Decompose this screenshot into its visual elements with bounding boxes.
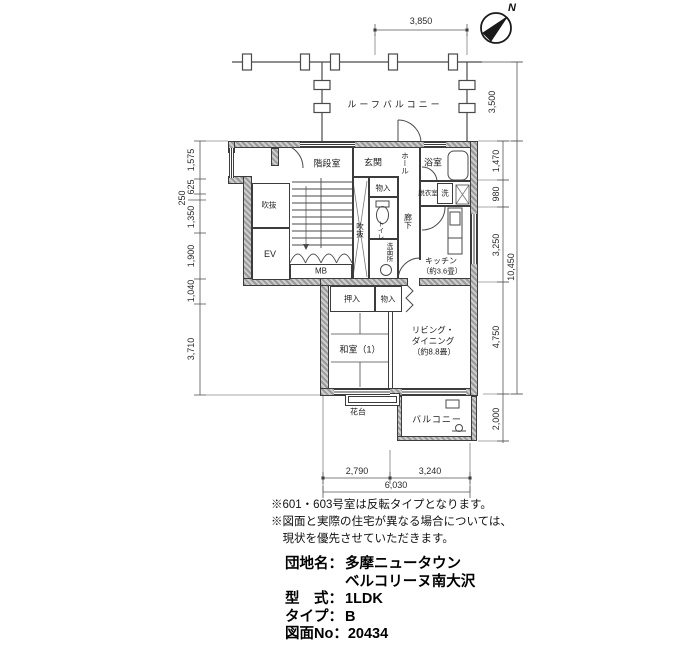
dim-bottom-2790: 2,790 bbox=[346, 466, 369, 476]
partition bbox=[352, 148, 354, 278]
partition bbox=[352, 176, 399, 178]
dim-left-250: 250 bbox=[177, 190, 187, 205]
room-label-ev: EV bbox=[264, 249, 276, 259]
room-label-mb: MB bbox=[315, 267, 327, 276]
wall bbox=[470, 141, 478, 396]
room-label-stairwell: 階段室 bbox=[313, 157, 340, 170]
info-row-danchi: 団地名：多摩ニュータウン bbox=[285, 556, 475, 574]
room-label-washroom: 洗面所 bbox=[383, 242, 393, 262]
balcony-door bbox=[402, 389, 466, 395]
dim-right-4750: 4,750 bbox=[491, 326, 501, 349]
window bbox=[229, 148, 234, 178]
bathtub-icon bbox=[448, 151, 468, 180]
floor-plan-page: ルーフバルコニー 階段室 玄関 ホール 浴室 物入 脱衣室 洗 吹抜 EV MB… bbox=[0, 0, 700, 650]
fusuma-partition bbox=[392, 312, 393, 388]
dim-left-625: 625 bbox=[186, 179, 196, 194]
dim-right-1470: 1,470 bbox=[491, 150, 501, 173]
compass-icon bbox=[481, 13, 511, 43]
note-line: ※図面と実際の住宅が異なる場合については、 bbox=[271, 514, 512, 531]
dim-right-980: 980 bbox=[491, 186, 501, 201]
folding-door bbox=[406, 284, 413, 312]
info-value: ベルコリーヌ南大沢 bbox=[345, 574, 475, 590]
room-label-washitsu: 和室（1） bbox=[339, 343, 380, 356]
partition bbox=[421, 180, 470, 182]
room-label-oshiire: 押入 bbox=[344, 294, 360, 305]
window bbox=[424, 142, 446, 147]
info-row-plan-type: タイプ：B bbox=[285, 609, 475, 627]
room-label-living-size: （約8.8畳） bbox=[412, 347, 455, 358]
balcony-drain-icon bbox=[456, 425, 463, 432]
washbasin-icon bbox=[381, 265, 392, 276]
mb-door-arcs bbox=[290, 254, 352, 263]
partition bbox=[368, 176, 370, 278]
dim-right-3250: 3,250 bbox=[491, 234, 501, 257]
stairs bbox=[292, 178, 352, 250]
info-row-danchi2: ベルコリーヌ南大沢 bbox=[285, 574, 475, 592]
fusuma-partition bbox=[388, 312, 389, 388]
note-line: 現状を優先させていただきます。 bbox=[271, 531, 512, 548]
info-label: 型 式： bbox=[285, 591, 345, 609]
dim-left-1350: 1,350 bbox=[186, 206, 196, 229]
info-label: 図面No： bbox=[285, 626, 348, 644]
kitchen-counter-icon bbox=[448, 208, 462, 238]
room-label-corridor: 廊下 bbox=[403, 213, 414, 229]
dim-left-1575: 1,575 bbox=[186, 149, 196, 172]
info-row-drawing-no: 図面No：20434 bbox=[285, 626, 475, 644]
window bbox=[471, 214, 477, 264]
info-value: 多摩ニュータウン bbox=[345, 556, 461, 572]
balcony-wall bbox=[397, 436, 477, 441]
room-label-roof-balcony: ルーフバルコニー bbox=[347, 98, 442, 111]
dim-top-3850: 3,850 bbox=[410, 16, 433, 26]
room-label-living-2: ダイニング bbox=[412, 335, 455, 347]
room-label-storage-upper: 物入 bbox=[376, 183, 391, 194]
dim-right-10450: 10,450 bbox=[506, 253, 516, 281]
window bbox=[300, 142, 355, 147]
info-value: B bbox=[345, 609, 355, 625]
wall bbox=[320, 278, 408, 286]
room-label-entrance: 玄関 bbox=[364, 156, 382, 169]
room-label-kitchen-size: （約3.6畳） bbox=[422, 266, 462, 277]
dim-bottom-3240: 3,240 bbox=[419, 466, 442, 476]
room-label-laundry: 洗 bbox=[441, 188, 449, 199]
room-label-toilet: トイレ bbox=[374, 220, 384, 240]
info-row-type: 型 式：1LDK bbox=[285, 591, 475, 609]
room-label-balcony: バルコニー bbox=[412, 413, 462, 426]
dim-right-3500: 3,500 bbox=[487, 91, 497, 114]
info-block: 団地名：多摩ニュータウン ベルコリーヌ南大沢 型 式：1LDK タイプ：B 図面… bbox=[285, 556, 475, 644]
partition bbox=[419, 148, 421, 260]
dim-right-2000: 2,000 bbox=[491, 408, 501, 431]
room-label-bath: 浴室 bbox=[424, 156, 442, 169]
window bbox=[334, 389, 390, 395]
partition bbox=[397, 176, 399, 278]
room-label-hall: ホール bbox=[400, 152, 411, 175]
balcony-vent-icon bbox=[446, 400, 459, 408]
dim-bottom-6030: 6,030 bbox=[385, 480, 408, 490]
wall bbox=[271, 148, 279, 166]
info-label: タイプ： bbox=[285, 609, 345, 627]
info-value: 20434 bbox=[348, 626, 388, 642]
room-label-dressing: 脱衣室 bbox=[418, 187, 438, 197]
wall bbox=[243, 176, 252, 286]
partition bbox=[421, 205, 470, 207]
info-value: 1LDK bbox=[345, 591, 383, 607]
notes-block: ※601・603号室は反転タイプとなります。 ※図面と実際の住宅が異なる場合につ… bbox=[271, 497, 512, 548]
dim-left-3710: 3,710 bbox=[186, 338, 196, 361]
room-label-void-center: 吹抜 bbox=[355, 223, 366, 238]
room-label-storage-lower: 物入 bbox=[381, 294, 396, 305]
wall bbox=[320, 278, 329, 395]
toilet-tank-icon bbox=[376, 201, 389, 207]
info-label: 団地名： bbox=[285, 556, 345, 574]
note-line: ※601・603号室は反転タイプとなります。 bbox=[271, 497, 512, 514]
dim-left-1900: 1,900 bbox=[186, 245, 196, 268]
partition bbox=[368, 196, 399, 198]
room-label-void-left: 吹抜 bbox=[262, 200, 277, 211]
balcony-wall bbox=[471, 396, 477, 441]
north-label: N bbox=[508, 2, 516, 14]
dim-left-1040: 1,040 bbox=[186, 280, 196, 303]
room-label-flower-stand: 花台 bbox=[350, 407, 366, 418]
